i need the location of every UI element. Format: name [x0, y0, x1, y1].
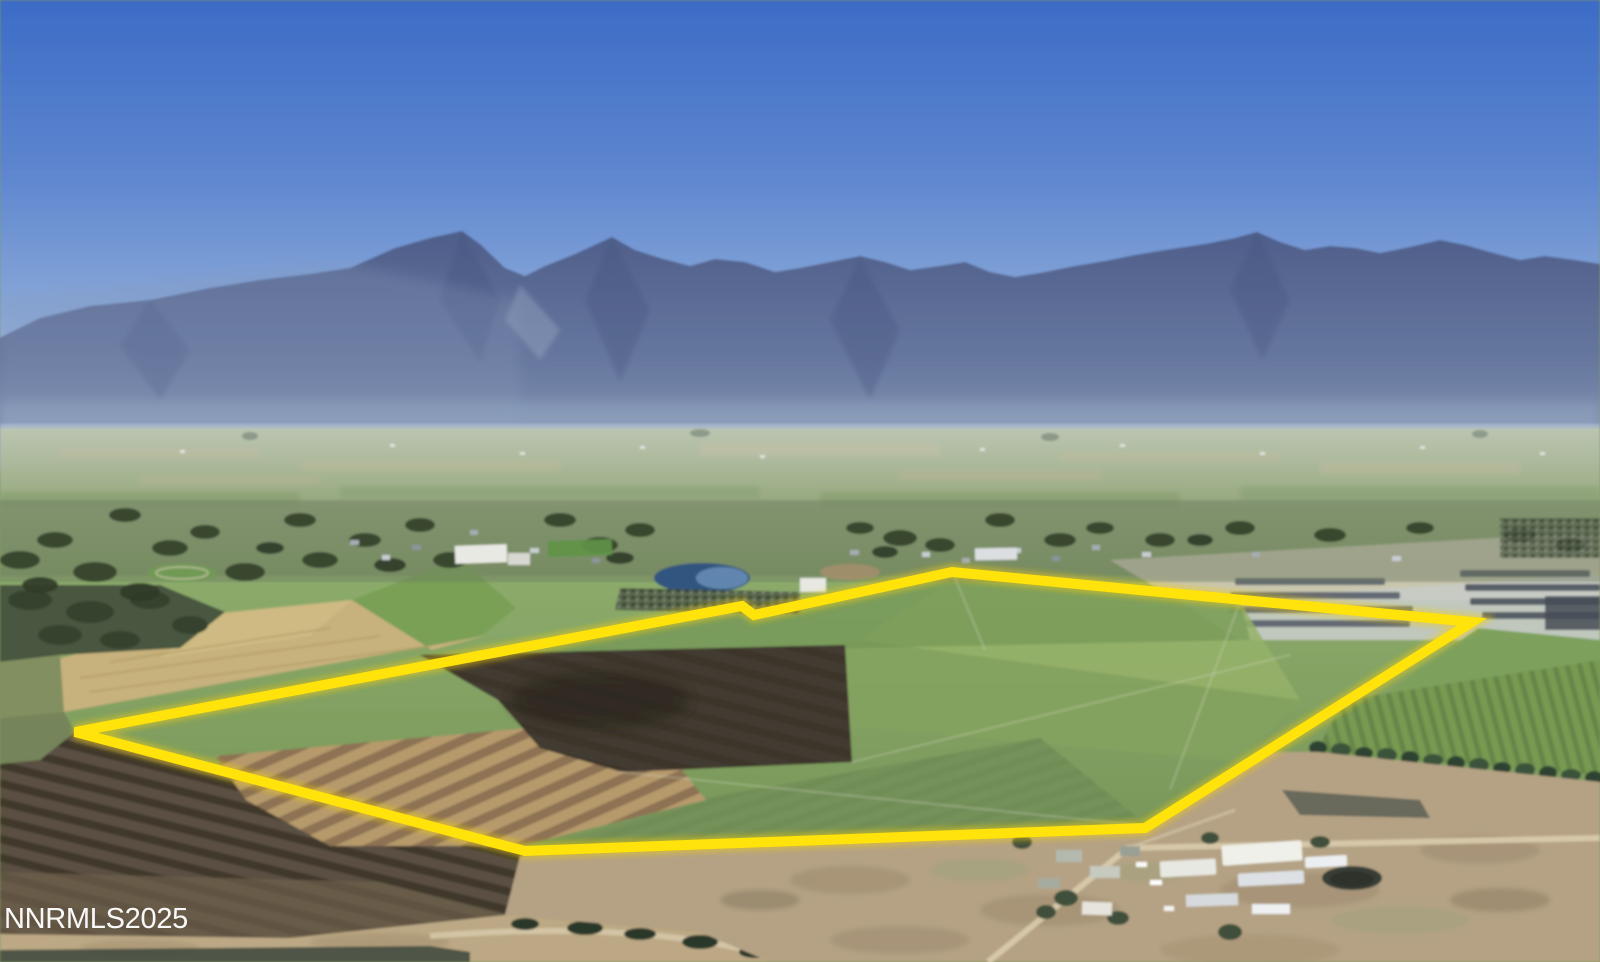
dirt-mound	[820, 564, 880, 580]
sports-field	[148, 564, 216, 582]
pond	[1322, 866, 1382, 890]
landscape	[0, 0, 1600, 962]
white-buildings	[800, 578, 826, 592]
commercial-building	[975, 548, 1017, 561]
barn	[1160, 859, 1217, 878]
atmospheric-haze	[0, 424, 1600, 508]
farmhouse	[1082, 901, 1112, 915]
olive-field	[0, 655, 64, 718]
far-right-housing	[1500, 518, 1600, 558]
lake	[654, 563, 750, 593]
aerial-photo: NNRMLS2025	[0, 0, 1600, 962]
watermark-text: NNRMLS2025	[4, 903, 188, 935]
outbuilding	[1305, 855, 1348, 868]
